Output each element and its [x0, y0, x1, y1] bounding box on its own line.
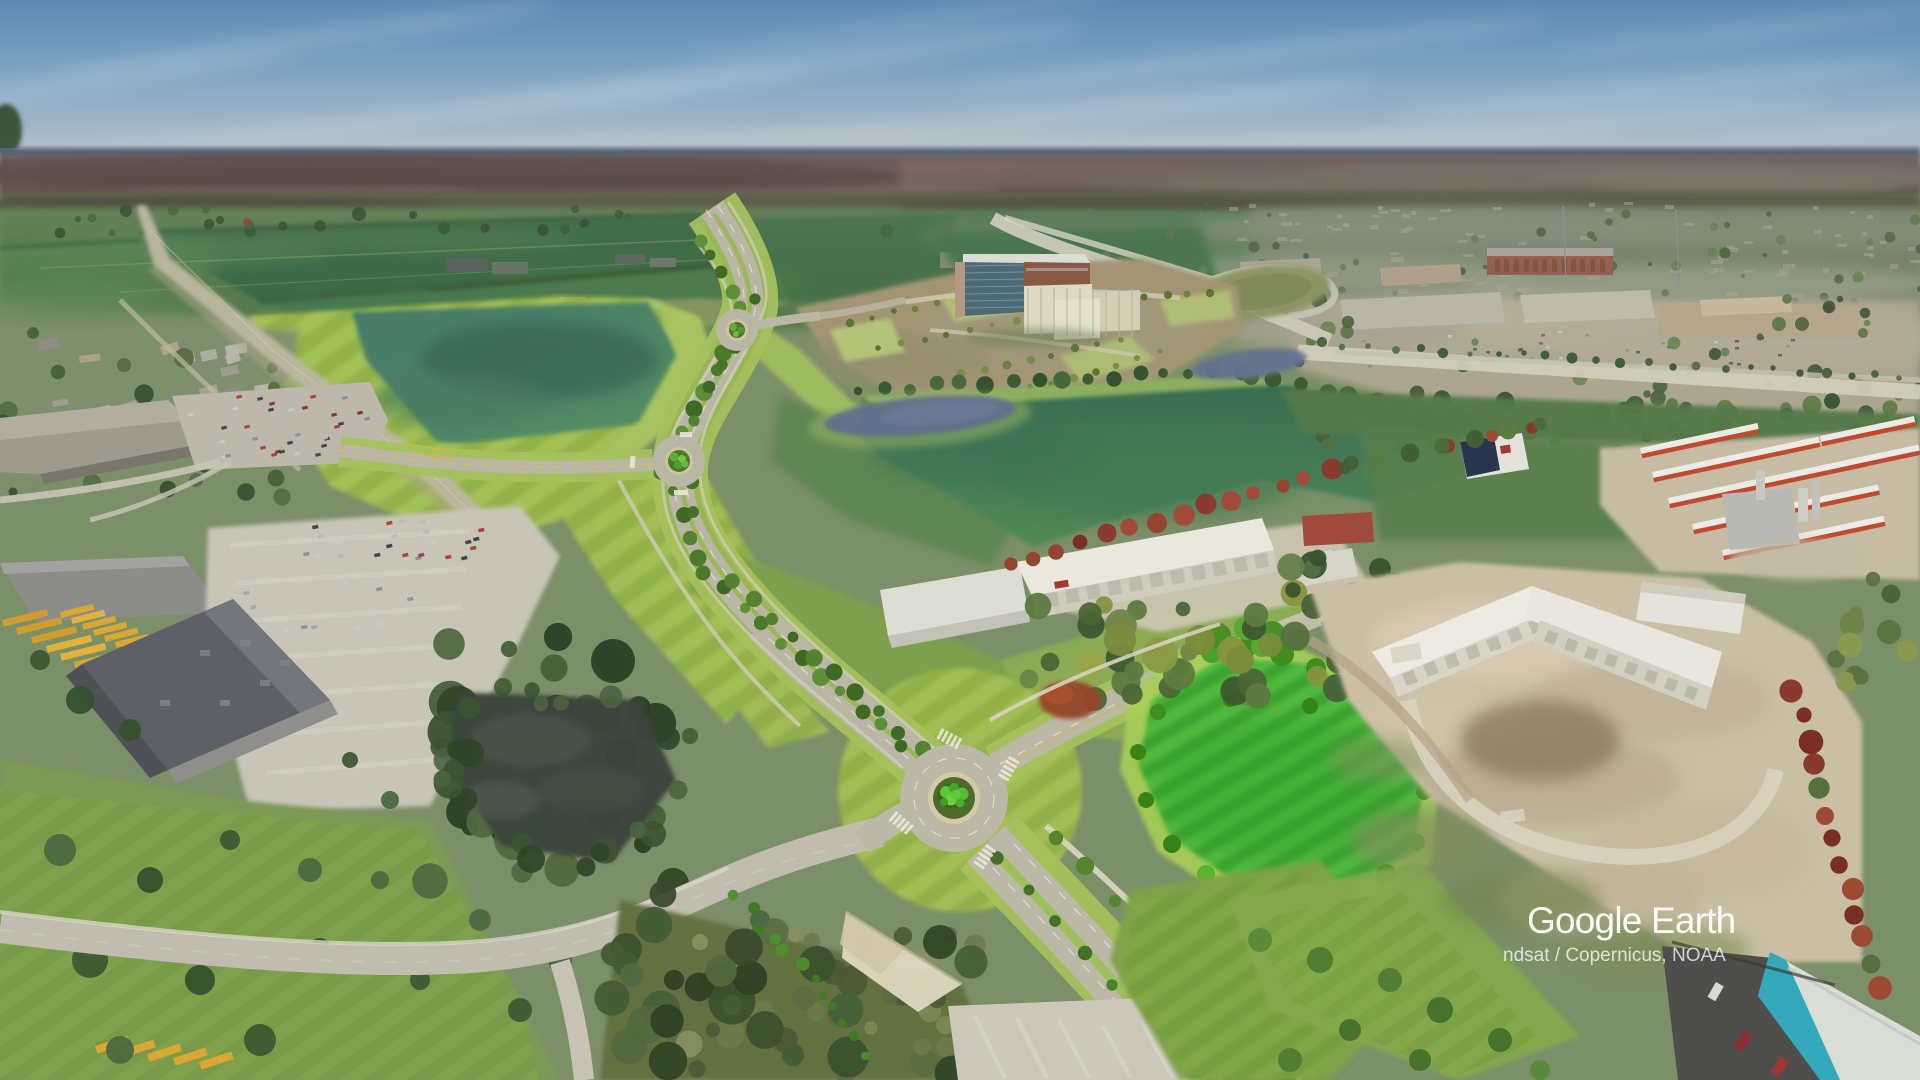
svg-text:Google Earth: Google Earth [1527, 900, 1735, 941]
svg-text:ndsat / Copernicus, NOAA: ndsat / Copernicus, NOAA [1503, 945, 1726, 966]
